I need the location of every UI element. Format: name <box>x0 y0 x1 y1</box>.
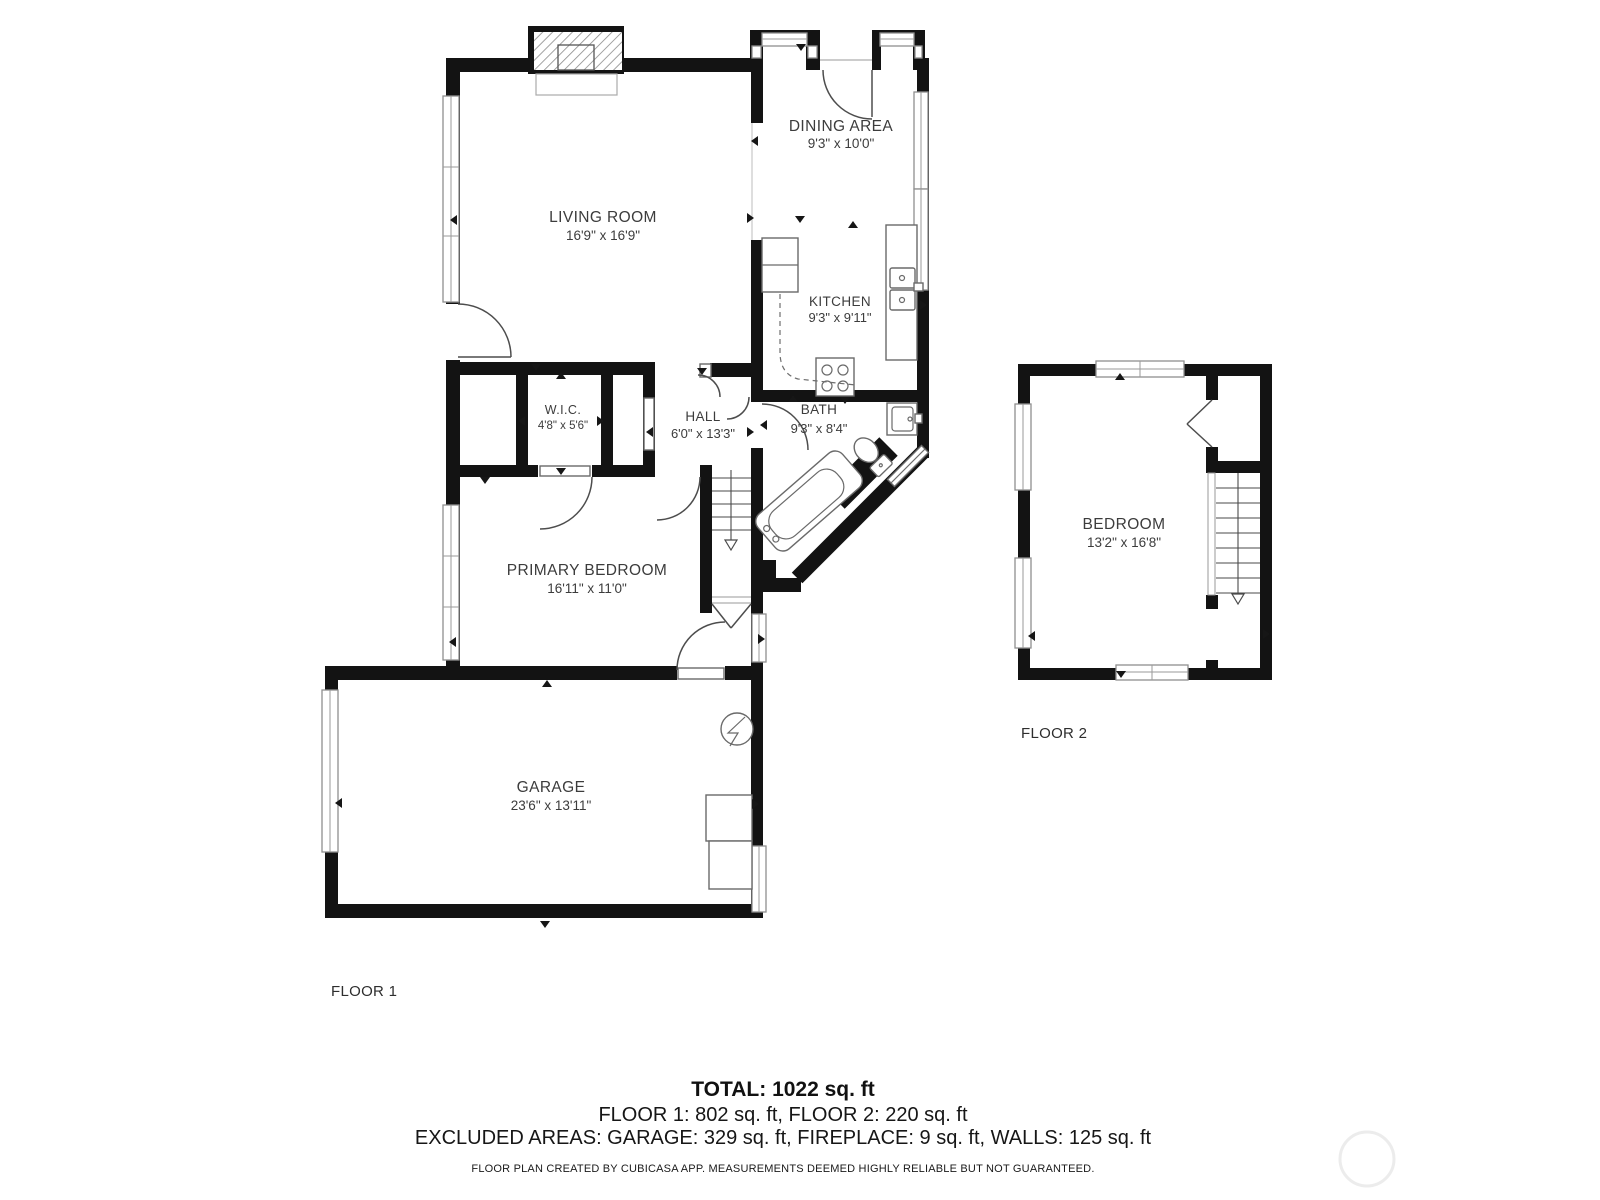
room-dims: 9'3" x 9'11" <box>808 310 871 325</box>
floor2-top-window <box>1096 361 1184 377</box>
electrical-panel-icon <box>721 713 753 746</box>
floor1-label: FLOOR 1 <box>331 983 397 1000</box>
room-label: KITCHEN <box>809 294 871 309</box>
room-label: LIVING ROOM <box>549 209 657 226</box>
garage-right-window <box>752 846 766 912</box>
room-living-room: LIVING ROOM16'9" x 16'9" <box>549 209 657 243</box>
room-kitchen: KITCHEN9'3" x 9'11" <box>808 294 871 325</box>
bedroom-hall-door <box>677 622 725 679</box>
summary-floors: FLOOR 1: 802 sq. ft, FLOOR 2: 220 sq. ft <box>598 1104 967 1126</box>
fireplace <box>534 32 622 95</box>
floor2-landing-door <box>1187 400 1212 447</box>
room-hall: HALL6'0" x 13'3" <box>671 409 735 441</box>
room-wic: W.I.C.4'8" x 5'6" <box>538 403 588 432</box>
bath-sink <box>887 403 922 435</box>
floor-plan-page: LIVING ROOM16'9" x 16'9" DINING AREA9'3"… <box>0 0 1600 1200</box>
bedroom-left-window <box>443 505 459 660</box>
room-dining-area: DINING AREA9'3" x 10'0" <box>789 118 894 151</box>
stove <box>816 358 854 396</box>
room-label: W.I.C. <box>545 403 581 417</box>
living-left-window <box>443 96 459 302</box>
room-dims: 9'3" x 8'4" <box>791 421 848 436</box>
room-primary-bedroom: PRIMARY BEDROOM16'11" x 11'0" <box>507 562 667 596</box>
front-entry-door <box>712 597 751 628</box>
hearth <box>536 74 617 95</box>
room-label: PRIMARY BEDROOM <box>507 562 667 579</box>
garage-left-window <box>322 690 338 852</box>
room-dims: 23'6" x 13'11" <box>511 798 592 813</box>
floor2-label: FLOOR 2 <box>1021 725 1087 742</box>
floor-plan-drawing: LIVING ROOM16'9" x 16'9" DINING AREA9'3"… <box>0 0 1600 1200</box>
closet-sliding-door <box>644 398 654 450</box>
stair-down-arrow-icon <box>725 540 737 550</box>
room-dims: 16'9" x 16'9" <box>566 228 640 243</box>
wic-door <box>540 466 592 529</box>
room-label: BATH <box>801 402 838 417</box>
refrigerator <box>762 238 798 292</box>
room-label: DINING AREA <box>789 118 894 135</box>
utility-appliances <box>706 795 752 889</box>
floor2-stairs <box>1187 400 1260 604</box>
summary-excluded: EXCLUDED AREAS: GARAGE: 329 sq. ft, FIRE… <box>415 1127 1152 1149</box>
room-label: BEDROOM <box>1083 516 1166 533</box>
room-label: GARAGE <box>517 779 586 796</box>
floor2-bottom-window <box>1116 665 1188 680</box>
room-bedroom-floor2: BEDROOM13'2" x 16'8" <box>1083 516 1166 550</box>
summary-disclaimer: FLOOR PLAN CREATED BY CUBICASA APP. MEAS… <box>471 1163 1094 1175</box>
room-garage: GARAGE23'6" x 13'11" <box>511 779 592 813</box>
room-dims: 6'0" x 13'3" <box>671 426 735 441</box>
room-dims: 16'11" x 11'0" <box>547 581 627 596</box>
room-dims: 13'2" x 16'8" <box>1087 535 1161 550</box>
living-exterior-door <box>458 304 511 357</box>
room-bath: BATH9'3" x 8'4" <box>791 402 848 436</box>
floor1-stairs <box>712 470 751 550</box>
watermark-circle-icon <box>1340 1132 1394 1186</box>
shower-glass-panel <box>888 446 929 487</box>
stair-down-arrow-icon <box>1232 594 1244 604</box>
garage-fixtures <box>706 713 753 889</box>
room-label: HALL <box>685 409 720 424</box>
summary-total: TOTAL: 1022 sq. ft <box>691 1078 875 1101</box>
room-dims: 9'3" x 10'0" <box>808 136 875 151</box>
hall-bedroom-door <box>657 477 700 520</box>
summary-block: TOTAL: 1022 sq. ft FLOOR 1: 802 sq. ft, … <box>415 1078 1152 1175</box>
room-dims: 4'8" x 5'6" <box>538 420 588 432</box>
